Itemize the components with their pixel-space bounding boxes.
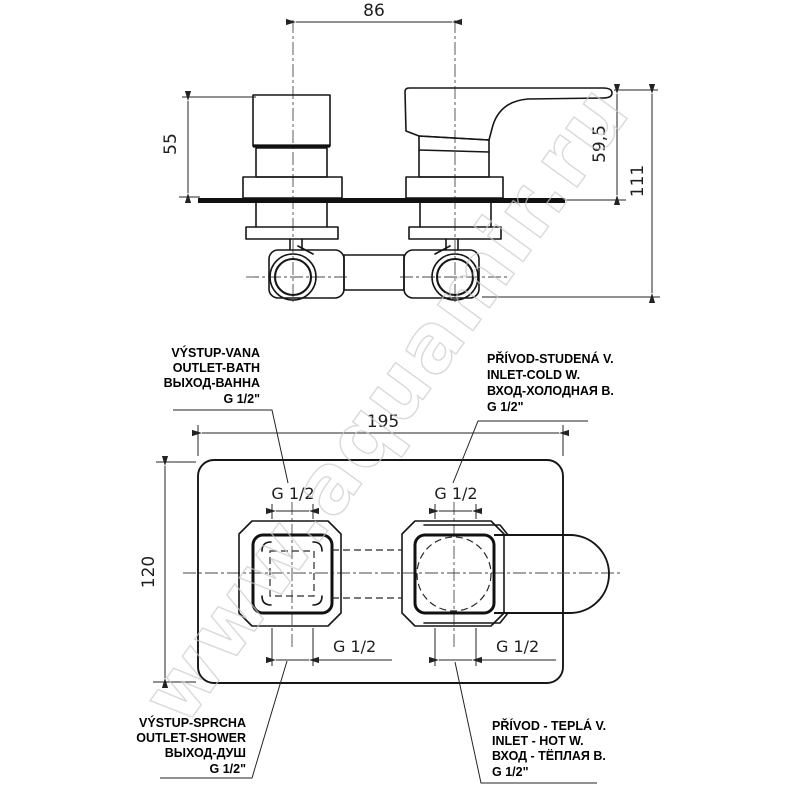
label-inlet-cold-thread: G 1/2" bbox=[487, 400, 524, 414]
label-inlet-cold-ru: ВХОД-ХОЛОДНАЯ В. bbox=[487, 384, 614, 398]
label-inlet-cold-cz: PŘÍVOD-STUDENÁ V. bbox=[487, 351, 614, 366]
hidden-connection-lines bbox=[332, 550, 402, 598]
technical-drawing: 86 55 59,5 111 bbox=[0, 0, 800, 800]
lever-plan-outline bbox=[494, 535, 609, 613]
diverter-knob bbox=[243, 95, 342, 198]
thread-dim-bottom-left: G 1/2 bbox=[272, 628, 392, 666]
dim-handle-spacing: 86 bbox=[296, 1, 452, 22]
thread-dim-bottom-right: G 1/2 bbox=[435, 628, 556, 666]
dim-55-value: 55 bbox=[161, 133, 181, 155]
dim-knob-height: 55 bbox=[161, 97, 256, 197]
label-inlet-cold: PŘÍVOD-STUDENÁ V. INLET-COLD W. ВХОД-ХОЛ… bbox=[453, 351, 614, 483]
boss-right bbox=[402, 521, 508, 626]
dim-86-value: 86 bbox=[363, 1, 385, 21]
label-inlet-cold-en: INLET-COLD W. bbox=[487, 368, 580, 382]
thread-bottom-right-value: G 1/2 bbox=[496, 637, 539, 656]
thread-bottom-left-value: G 1/2 bbox=[333, 637, 376, 656]
label-outlet-bath-cz: VÝSTUP-VANA bbox=[171, 345, 260, 360]
dim-111-value: 111 bbox=[628, 165, 648, 197]
connecting-bridge bbox=[344, 255, 404, 290]
label-outlet-bath-thread: G 1/2" bbox=[224, 392, 261, 406]
label-outlet-bath-ru: ВЫХОД-ВАННА bbox=[164, 376, 260, 390]
thread-dim-top-right: G 1/2 bbox=[434, 484, 477, 519]
label-inlet-hot-en: INLET - HOT W. bbox=[492, 734, 584, 748]
label-outlet-shower-thread: G 1/2" bbox=[210, 762, 247, 776]
valve-body-left bbox=[246, 203, 344, 300]
dim-120-value: 120 bbox=[139, 556, 159, 588]
label-inlet-hot: PŘÍVOD - TEPLÁ V. INLET - HOT W. ВХОД - … bbox=[455, 662, 606, 783]
thread-top-right-value: G 1/2 bbox=[434, 484, 477, 503]
label-inlet-hot-thread: G 1/2" bbox=[492, 765, 529, 779]
label-outlet-shower-ru: ВЫХОД-ДУШ bbox=[165, 746, 246, 760]
label-inlet-hot-cz: PŘÍVOD - TEPLÁ V. bbox=[492, 718, 606, 733]
watermark: www.aquamir.ru bbox=[124, 68, 648, 740]
label-inlet-hot-ru: ВХОД - ТЁПЛАЯ В. bbox=[492, 748, 606, 763]
label-outlet-bath-en: OUTLET-BATH bbox=[173, 361, 260, 375]
